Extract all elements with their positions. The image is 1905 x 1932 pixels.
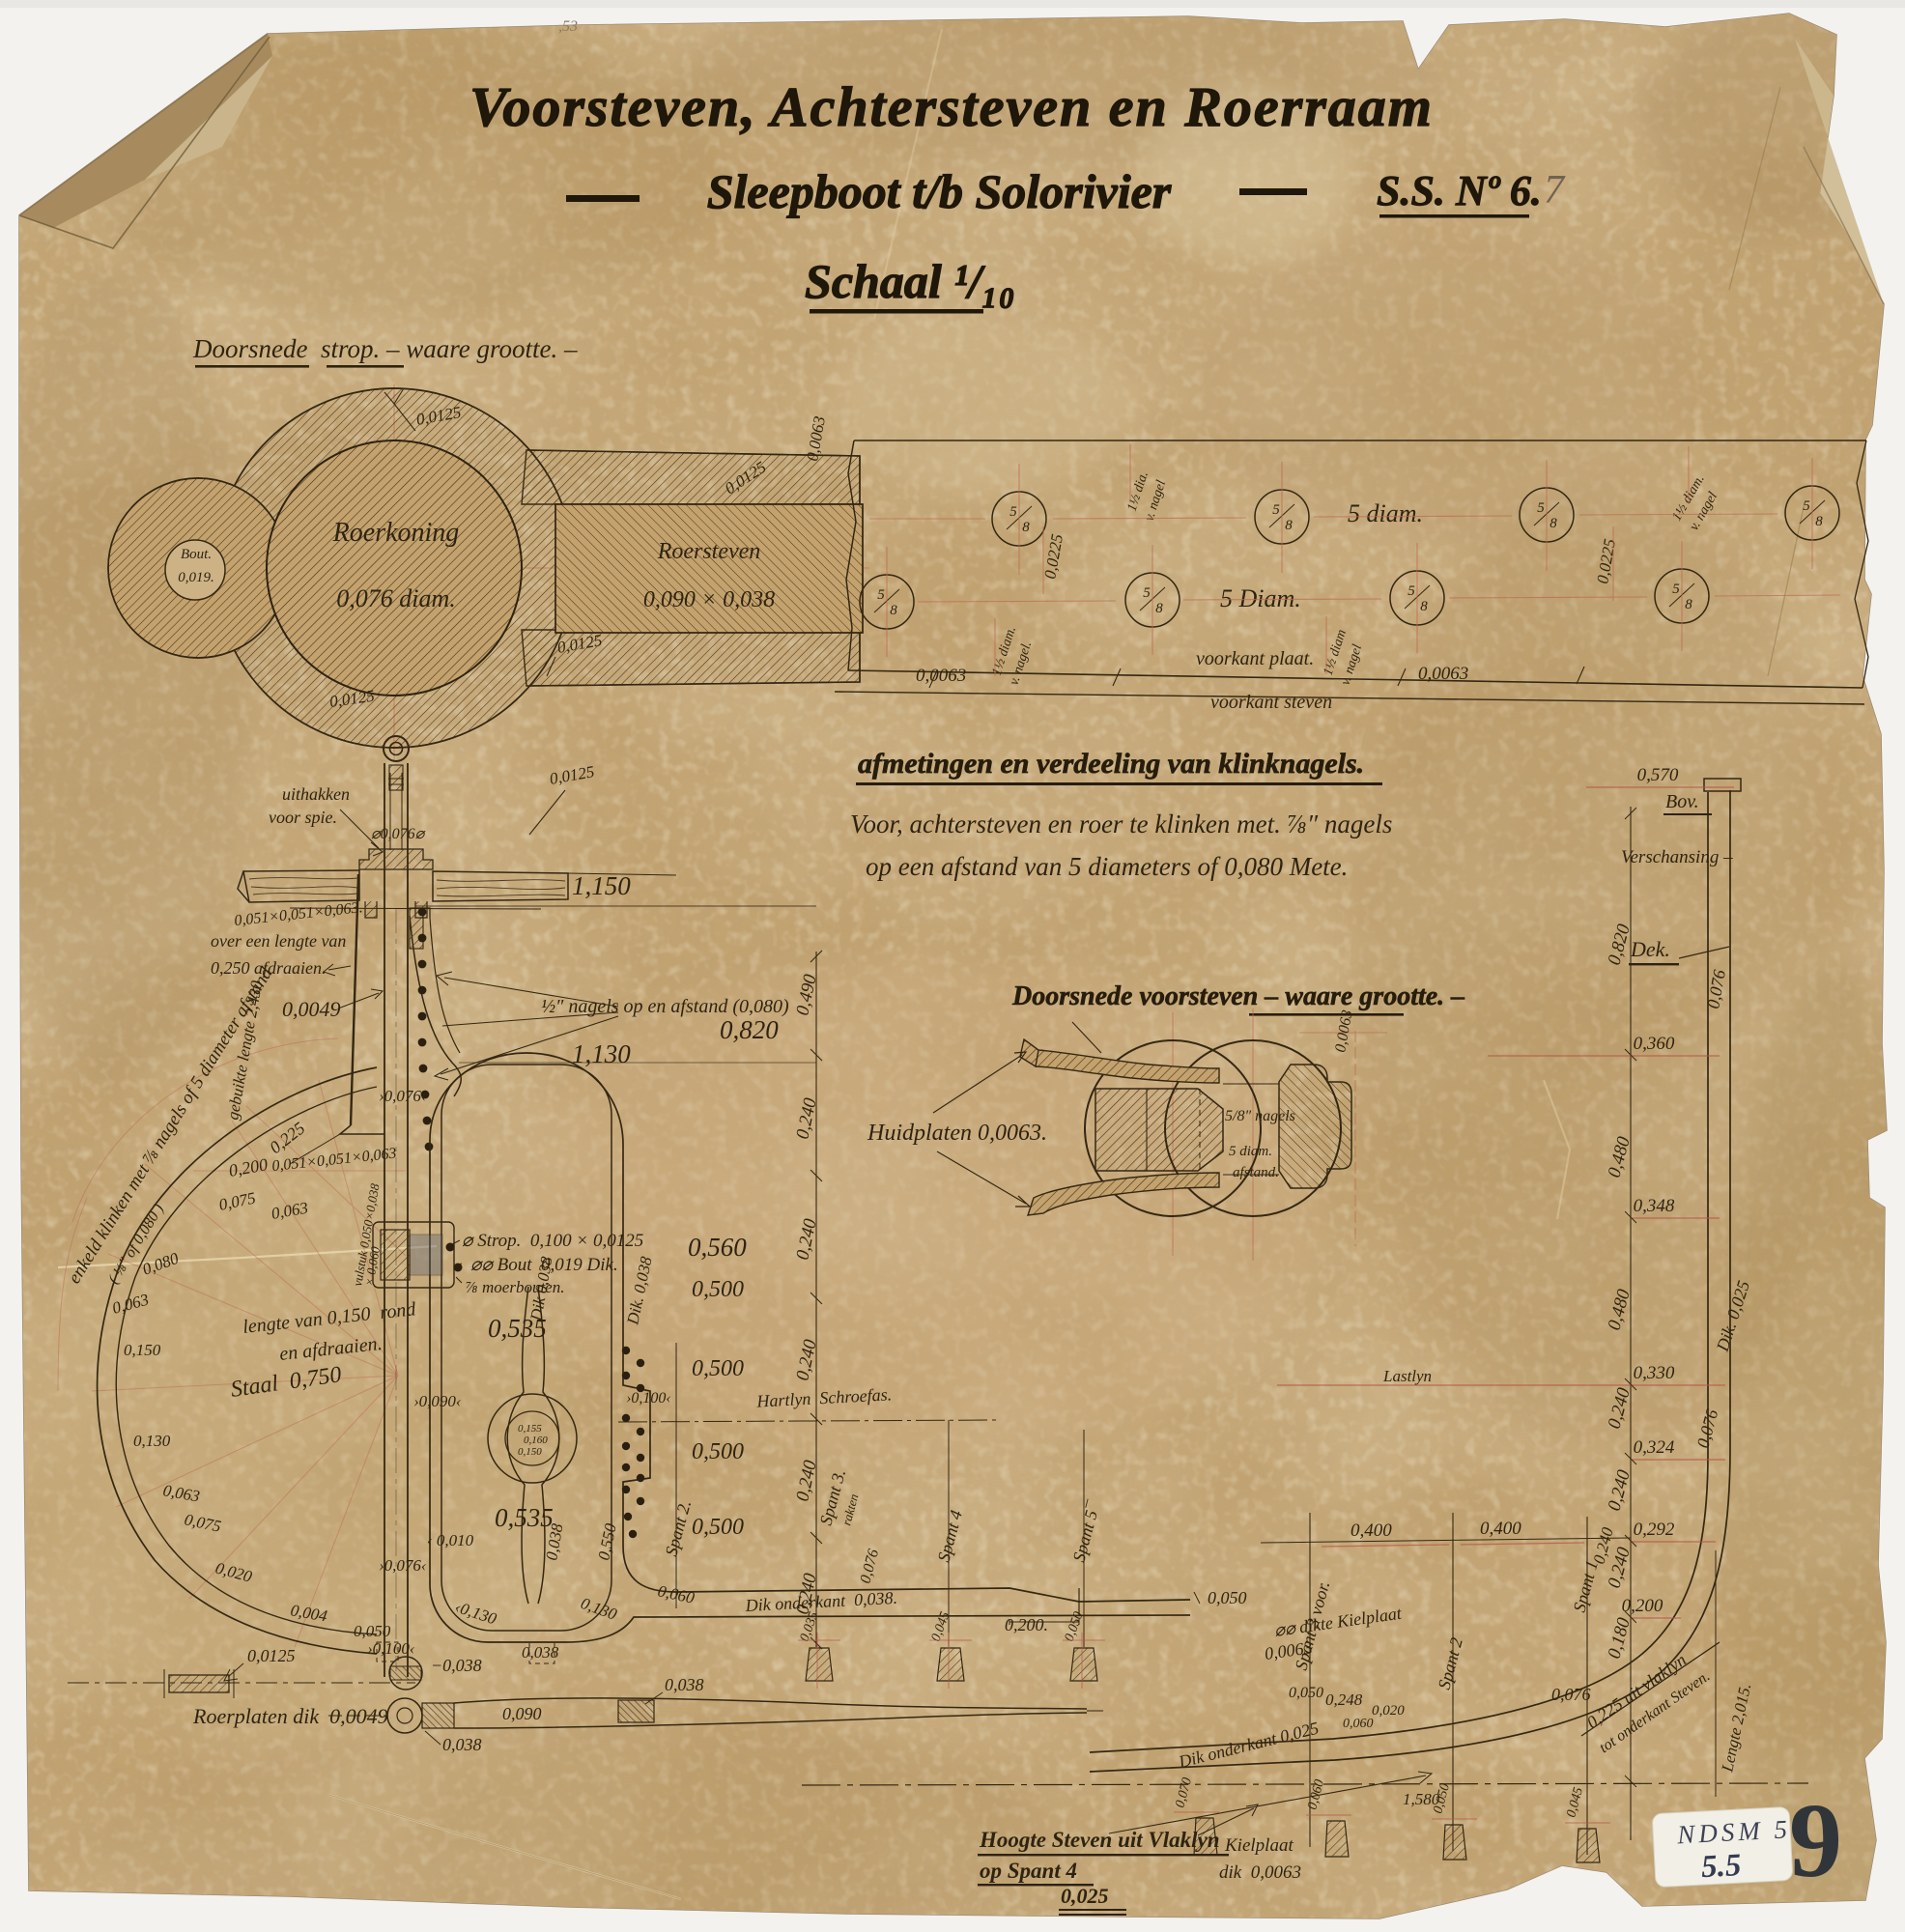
svg-text:›0,076‹: ›0,076‹ (379, 1087, 427, 1105)
svg-text:0,038: 0,038 (665, 1675, 704, 1694)
svg-text:0,038: 0,038 (442, 1735, 482, 1754)
svg-text:0,076: 0,076 (1551, 1685, 1591, 1704)
svg-text:0,500: 0,500 (692, 1277, 744, 1302)
svg-text:0,150: 0,150 (124, 1341, 161, 1359)
svg-text:8: 8 (1685, 597, 1692, 612)
svg-text:0,360: 0,360 (1634, 1034, 1675, 1054)
svg-text:0,038: 0,038 (522, 1643, 559, 1662)
svg-text:5/8″ nagels: 5/8″ nagels (1225, 1108, 1295, 1124)
svg-text:Lastlyn: Lastlyn (1382, 1367, 1432, 1385)
svg-text:uithakken: uithakken (282, 784, 350, 804)
svg-text:0,130: 0,130 (133, 1432, 171, 1450)
svg-text:Schaal ¹/₁₀: Schaal ¹/₁₀ (805, 254, 1015, 308)
svg-text:op Spant 4: op Spant 4 (980, 1859, 1077, 1883)
svg-text:0,0063: 0,0063 (916, 666, 966, 686)
svg-text:0,500: 0,500 (692, 1439, 744, 1464)
svg-text:0,500: 0,500 (692, 1356, 744, 1381)
svg-text:0,050: 0,050 (1289, 1685, 1323, 1701)
svg-text:0,400: 0,400 (1351, 1520, 1392, 1541)
svg-text:½″ nagels op en afstand (0,080: ½″ nagels op en afstand (0,080) (541, 996, 789, 1017)
svg-text:Doorsnede strop. – waare groo: Doorsnede strop. – waare grootte. – (192, 334, 578, 363)
svg-text:voor spie.: voor spie. (269, 808, 337, 827)
svg-text:afmetingen en verdeeling van k: afmetingen en verdeeling van klinknagels… (858, 748, 1364, 780)
svg-text:Dek.: Dek. (1630, 937, 1670, 961)
svg-text:0,248: 0,248 (1325, 1690, 1363, 1709)
svg-text:Huidplaten 0,0063.: Huidplaten 0,0063. (867, 1121, 1047, 1146)
svg-text:Hoogte Steven uit Vlaklyn: Hoogte Steven uit Vlaklyn (979, 1828, 1220, 1852)
svg-text:0,0125: 0,0125 (247, 1646, 296, 1665)
svg-text:5: 5 (1803, 498, 1810, 514)
svg-text:0,150: 0,150 (518, 1446, 542, 1458)
svg-text:0,535: 0,535 (495, 1503, 554, 1532)
svg-text:7: 7 (1544, 168, 1566, 213)
svg-text:5: 5 (1272, 502, 1280, 518)
svg-text:over een lengte van: over een lengte van (211, 931, 346, 951)
svg-text:0,560: 0,560 (688, 1233, 747, 1262)
svg-text:Doorsnede voorsteven – waare g: Doorsnede voorsteven – waare grootte. – (1011, 981, 1464, 1011)
svg-text:9: 9 (1789, 1781, 1842, 1899)
svg-text:Roerplaten dik 0,0049: Roerplaten dik 0,0049 (192, 1704, 388, 1728)
svg-text:5.5: 5.5 (1700, 1848, 1742, 1885)
svg-text:Sleepboot t/b Solorivier: Sleepboot t/b Solorivier (707, 164, 1172, 218)
svg-text:afstand.: afstand. (1233, 1165, 1279, 1180)
svg-text:8: 8 (1550, 516, 1557, 531)
svg-text:8: 8 (1285, 518, 1293, 533)
svg-text:0,076 diam.: 0,076 diam. (336, 584, 456, 612)
svg-text:0,400: 0,400 (1480, 1519, 1521, 1539)
svg-text:dik 0,0063: dik 0,0063 (1219, 1862, 1301, 1883)
svg-text:0,0049: 0,0049 (282, 997, 341, 1021)
svg-text:0,155: 0,155 (518, 1423, 542, 1435)
svg-text:voorkant plaat.: voorkant plaat. (1196, 648, 1314, 669)
svg-text:5: 5 (1407, 583, 1415, 599)
svg-text:0,324: 0,324 (1634, 1437, 1675, 1458)
svg-text:Bout.: Bout. (181, 547, 212, 562)
svg-text:⌀ Strop. 0,100 × 0,0125: ⌀ Strop. 0,100 × 0,0125 (462, 1231, 643, 1251)
svg-text:5: 5 (1672, 582, 1680, 597)
svg-text:Bov.: Bov. (1665, 791, 1699, 812)
svg-text:voorkant steven: voorkant steven (1210, 692, 1332, 713)
svg-text:op een afstand van 5 diameters: op een afstand van 5 diameters of 0,080 … (866, 852, 1348, 881)
svg-text:5: 5 (1009, 504, 1017, 520)
svg-text:›0,100‹: ›0,100‹ (367, 1639, 415, 1658)
svg-text:S.S. Nº 6.: S.S. Nº 6. (1377, 167, 1542, 214)
svg-text:Roerkoning: Roerkoning (332, 518, 460, 548)
svg-text:8: 8 (890, 603, 897, 618)
svg-text:0,050: 0,050 (354, 1622, 391, 1640)
svg-text:Roersteven: Roersteven (657, 539, 761, 564)
svg-text:0,090 × 0,038: 0,090 × 0,038 (643, 587, 775, 612)
svg-text:8: 8 (1420, 599, 1428, 614)
svg-text:⌀0,076⌀: ⌀0,076⌀ (371, 826, 426, 842)
svg-text:0,200: 0,200 (1622, 1596, 1663, 1616)
svg-text:0,020: 0,020 (1372, 1703, 1405, 1719)
svg-text:‹ 0,010: ‹ 0,010 (427, 1531, 474, 1549)
svg-text:8: 8 (1815, 514, 1823, 529)
svg-text:0,348: 0,348 (1634, 1196, 1675, 1216)
svg-text:0,535: 0,535 (488, 1314, 547, 1343)
svg-text:NDSM 5: NDSM 5 (1676, 1814, 1792, 1849)
svg-text:5: 5 (877, 587, 885, 603)
svg-text:Voor, achtersteven en roer te: Voor, achtersteven en roer te klinken me… (850, 810, 1392, 838)
svg-text:5 diam.: 5 diam. (1348, 499, 1423, 527)
svg-text:0,292: 0,292 (1634, 1520, 1675, 1540)
svg-text:0,025: 0,025 (1061, 1884, 1109, 1908)
svg-text:0,050: 0,050 (1208, 1588, 1247, 1607)
svg-text:0,570: 0,570 (1637, 765, 1679, 785)
svg-text:,53: ,53 (558, 18, 578, 35)
svg-text:8: 8 (1155, 601, 1163, 616)
svg-text:Verschansing –: Verschansing – (1621, 847, 1733, 867)
svg-text:8: 8 (1022, 520, 1030, 535)
svg-text:0,330: 0,330 (1634, 1363, 1675, 1383)
svg-text:0,019.: 0,019. (178, 570, 214, 585)
svg-text:›0,076‹: ›0,076‹ (379, 1556, 427, 1575)
svg-text:›0,090‹: ›0,090‹ (413, 1392, 462, 1410)
svg-text:5: 5 (1537, 500, 1545, 516)
svg-text:0,160: 0,160 (524, 1435, 548, 1446)
svg-text:0,200.: 0,200. (1005, 1615, 1048, 1634)
svg-text:Kielplaat: Kielplaat (1224, 1835, 1294, 1856)
svg-text:›0,100‹: ›0,100‹ (626, 1390, 671, 1406)
svg-text:0,820: 0,820 (720, 1015, 779, 1044)
svg-text:1,130: 1,130 (572, 1039, 631, 1068)
svg-text:0,090: 0,090 (502, 1704, 542, 1723)
svg-text:0,500: 0,500 (692, 1515, 744, 1540)
svg-text:Voorsteven, Achtersteven en Ro: Voorsteven, Achtersteven en Roerraam (469, 75, 1434, 138)
svg-text:5: 5 (1143, 585, 1151, 601)
svg-text:1,150: 1,150 (572, 871, 631, 900)
svg-text:0,0063: 0,0063 (1418, 664, 1468, 684)
svg-text:0,250 afdraaien.: 0,250 afdraaien. (211, 958, 327, 978)
svg-text:0,060: 0,060 (1343, 1717, 1374, 1731)
svg-text:−0,038: −0,038 (431, 1656, 482, 1675)
svg-text:5 Diam.: 5 Diam. (1220, 584, 1301, 612)
svg-text:5 diam.: 5 diam. (1229, 1144, 1272, 1159)
